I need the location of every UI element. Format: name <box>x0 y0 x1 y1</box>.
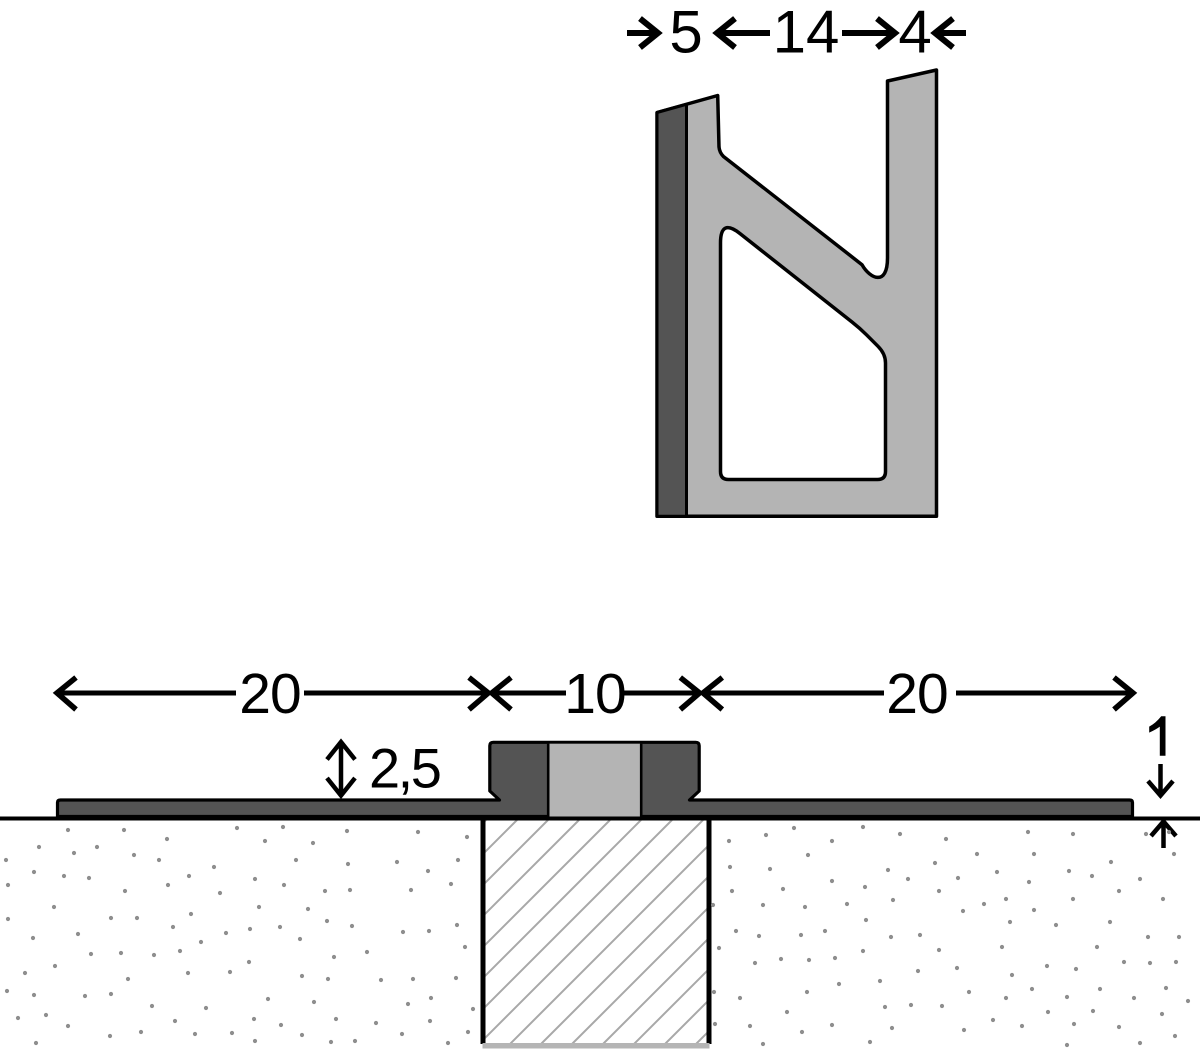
svg-text:2,5: 2,5 <box>369 737 440 800</box>
svg-text:20: 20 <box>239 662 300 726</box>
svg-text:4: 4 <box>898 0 931 66</box>
svg-text:14: 14 <box>773 0 840 66</box>
svg-text:10: 10 <box>564 662 625 726</box>
svg-text:20: 20 <box>886 662 947 726</box>
svg-text:5: 5 <box>669 0 702 66</box>
